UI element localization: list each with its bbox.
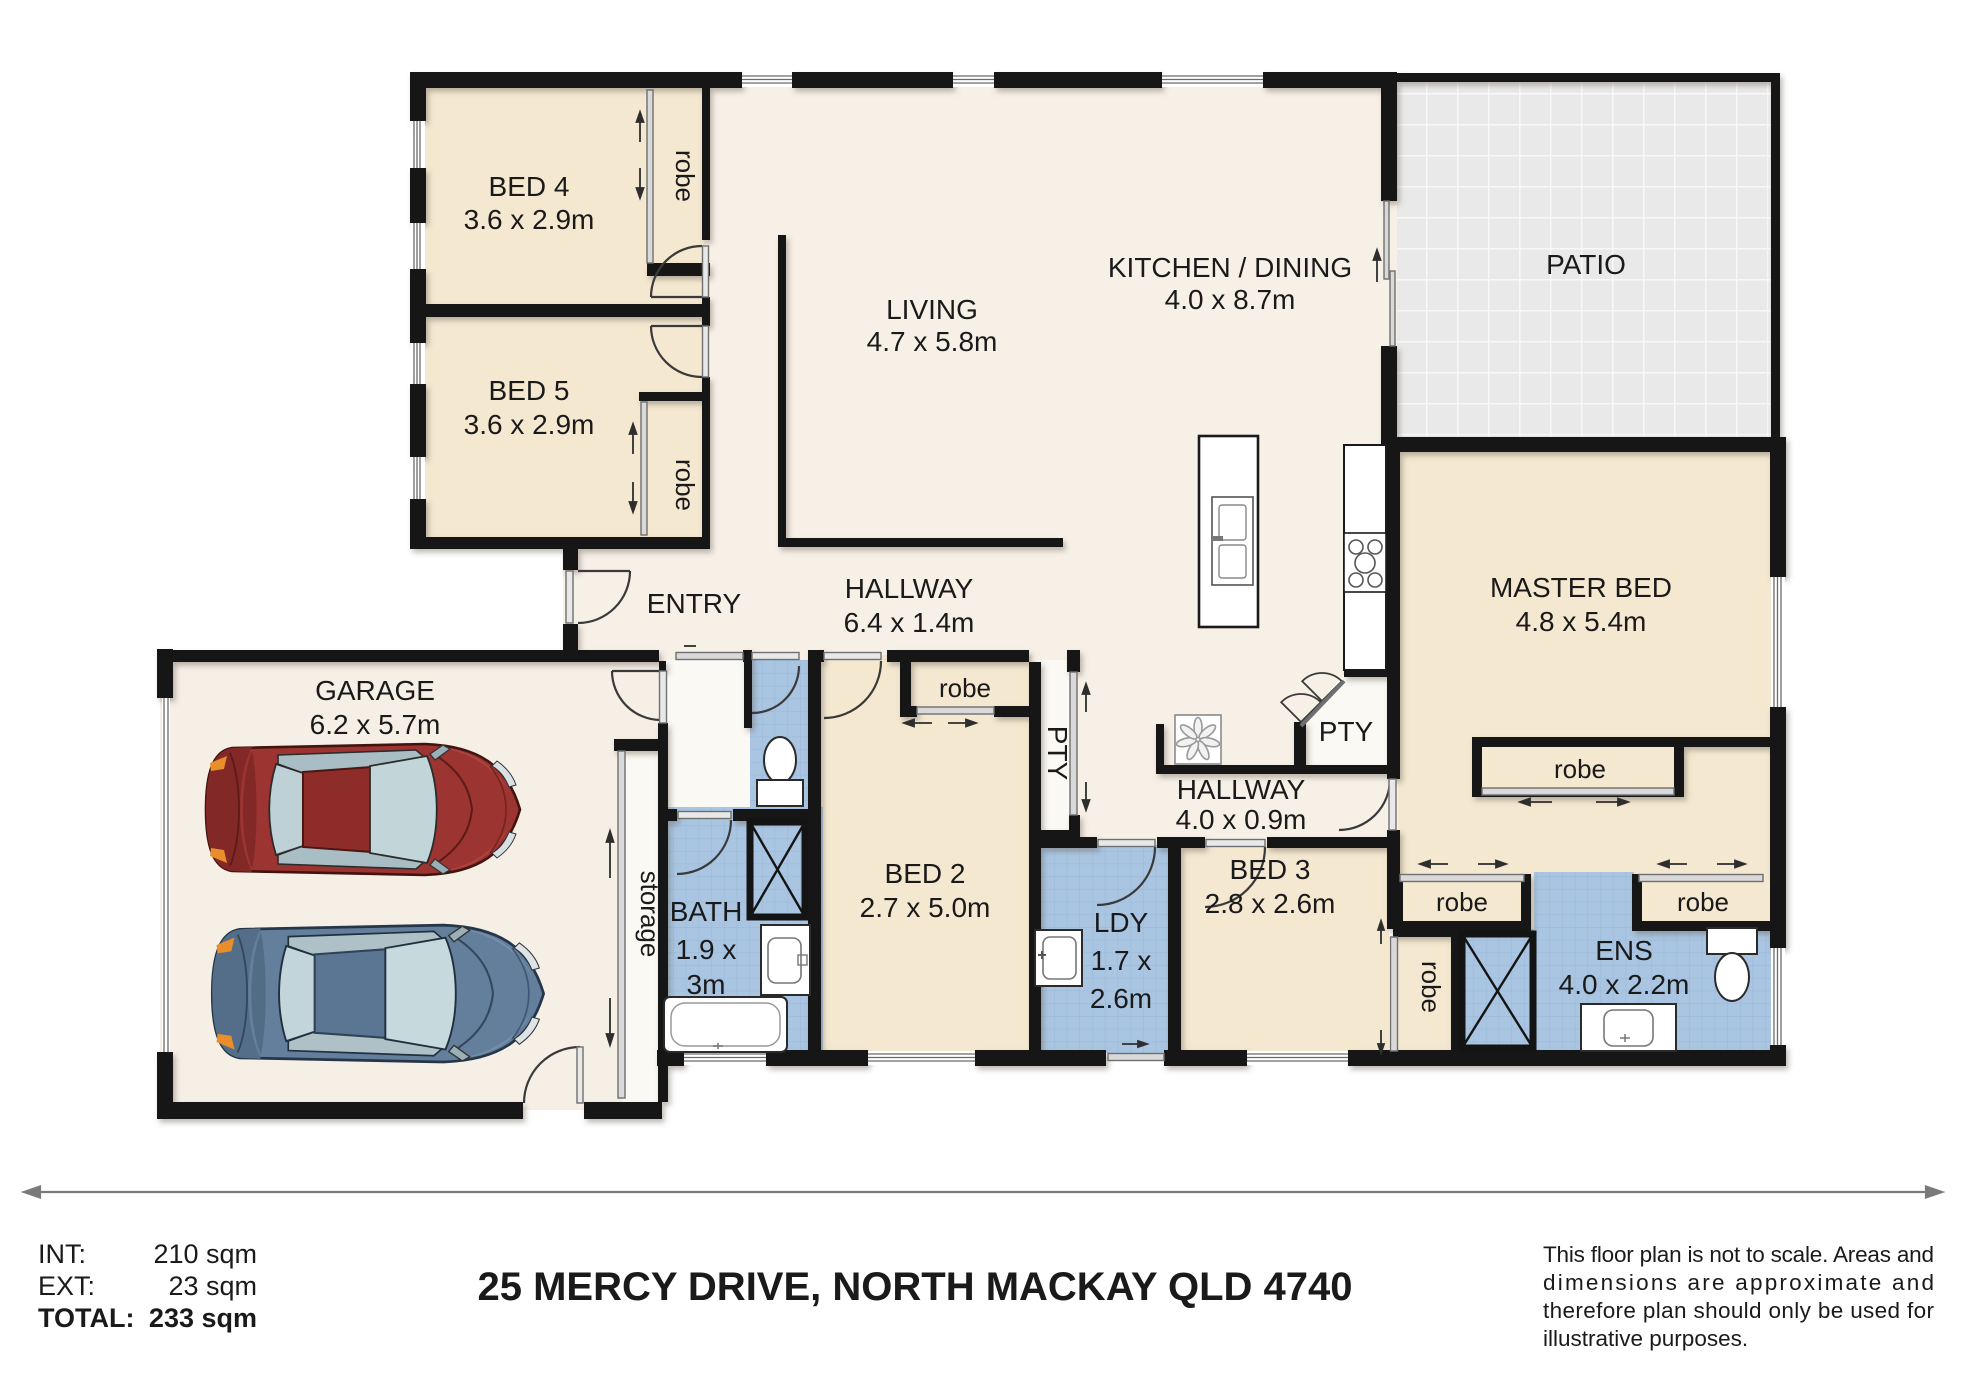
- svg-text:GARAGE: GARAGE: [315, 675, 435, 706]
- svg-text:4.0 x 0.9m: 4.0 x 0.9m: [1176, 804, 1307, 835]
- svg-text:2.6m: 2.6m: [1090, 983, 1152, 1014]
- svg-text:HALLWAY: HALLWAY: [1177, 774, 1306, 805]
- svg-text:dimensions are approximate and: dimensions are approximate and: [1543, 1270, 1934, 1295]
- svg-text:robe: robe: [670, 459, 700, 511]
- svg-text:KITCHEN / DINING: KITCHEN / DINING: [1108, 252, 1352, 283]
- svg-text:ENTRY: ENTRY: [647, 588, 742, 619]
- svg-text:2.7 x 5.0m: 2.7 x 5.0m: [860, 892, 991, 923]
- svg-text:PTY: PTY: [1319, 716, 1374, 747]
- svg-text:23 sqm: 23 sqm: [168, 1271, 257, 1301]
- svg-text:robe: robe: [1416, 961, 1446, 1013]
- svg-text:BATH: BATH: [670, 896, 743, 927]
- svg-text:illustrative purposes.: illustrative purposes.: [1543, 1326, 1748, 1351]
- svg-text:4.8 x 5.4m: 4.8 x 5.4m: [1516, 606, 1647, 637]
- svg-text:PATIO: PATIO: [1546, 249, 1626, 280]
- svg-text:This floor plan is not to scal: This floor plan is not to scale. Areas a…: [1543, 1242, 1934, 1267]
- svg-text:EXT:: EXT:: [38, 1271, 95, 1301]
- svg-text:3.6 x 2.9m: 3.6 x 2.9m: [464, 409, 595, 440]
- svg-text:LIVING: LIVING: [886, 294, 978, 325]
- svg-text:4.0 x 8.7m: 4.0 x 8.7m: [1165, 284, 1296, 315]
- svg-text:233 sqm: 233 sqm: [149, 1303, 257, 1333]
- svg-text:robe: robe: [939, 673, 991, 703]
- svg-text:LDY: LDY: [1094, 907, 1149, 938]
- svg-text:PTY: PTY: [1042, 726, 1073, 781]
- svg-text:2.8 x 2.6m: 2.8 x 2.6m: [1205, 888, 1336, 919]
- svg-text:ENS: ENS: [1595, 935, 1653, 966]
- svg-text:6.2 x 5.7m: 6.2 x 5.7m: [310, 709, 441, 740]
- svg-text:TOTAL:: TOTAL:: [38, 1303, 134, 1333]
- svg-text:BED 2: BED 2: [885, 858, 966, 889]
- svg-text:6.4 x 1.4m: 6.4 x 1.4m: [844, 607, 975, 638]
- svg-text:storage: storage: [635, 871, 665, 958]
- svg-text:3.6 x 2.9m: 3.6 x 2.9m: [464, 204, 595, 235]
- svg-text:4.0 x 2.2m: 4.0 x 2.2m: [1559, 969, 1690, 1000]
- svg-text:robe: robe: [1436, 887, 1488, 917]
- svg-text:therefore plan should only be: therefore plan should only be used for: [1543, 1298, 1935, 1323]
- svg-text:25 MERCY DRIVE, NORTH MACKAY Q: 25 MERCY DRIVE, NORTH MACKAY QLD 4740: [477, 1265, 1352, 1309]
- svg-text:BED 5: BED 5: [489, 375, 570, 406]
- svg-text:MASTER BED: MASTER BED: [1490, 572, 1672, 603]
- svg-text:1.9 x: 1.9 x: [676, 934, 737, 965]
- svg-text:HALLWAY: HALLWAY: [845, 573, 974, 604]
- svg-text:210 sqm: 210 sqm: [153, 1239, 257, 1269]
- svg-text:robe: robe: [670, 150, 700, 202]
- svg-text:4.7 x 5.8m: 4.7 x 5.8m: [867, 326, 998, 357]
- svg-text:1.7 x: 1.7 x: [1091, 945, 1152, 976]
- svg-text:INT:: INT:: [38, 1239, 86, 1269]
- svg-text:BED 4: BED 4: [489, 171, 570, 202]
- svg-text:robe: robe: [1554, 754, 1606, 784]
- svg-text:robe: robe: [1677, 887, 1729, 917]
- svg-text:BED 3: BED 3: [1230, 854, 1311, 885]
- svg-text:3m: 3m: [687, 969, 726, 1000]
